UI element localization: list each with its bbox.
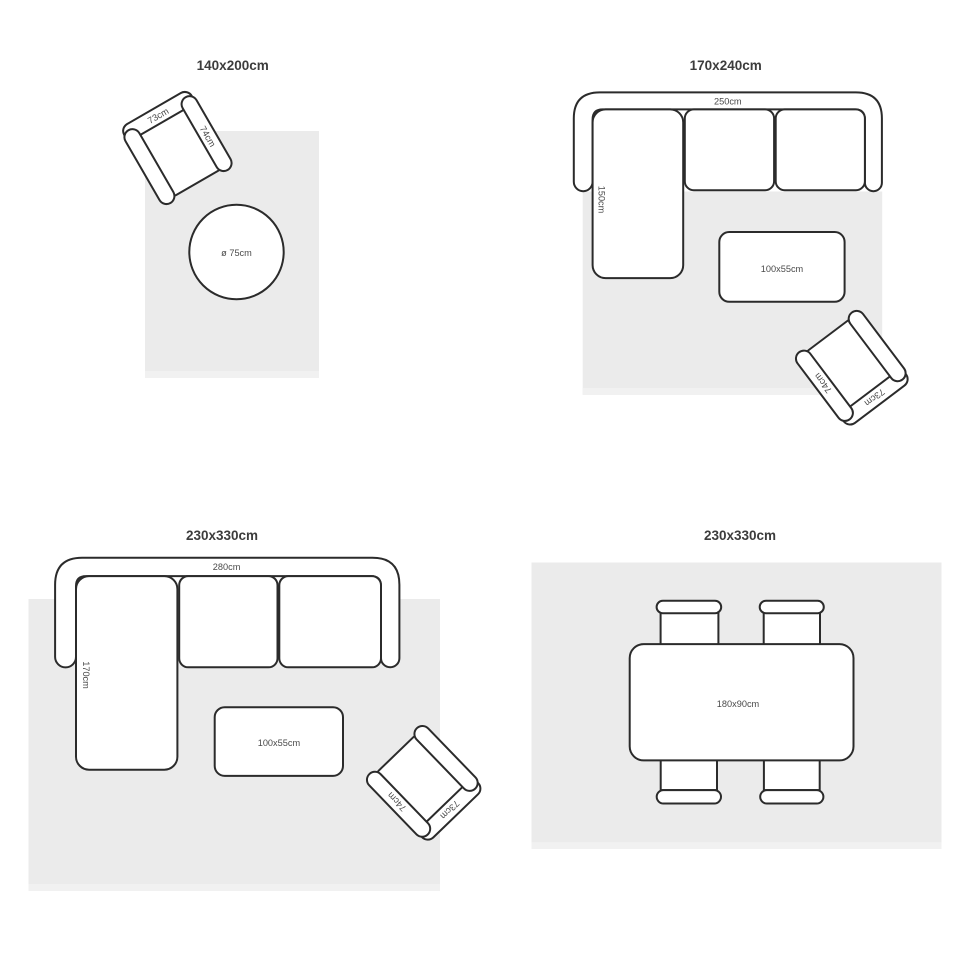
- svg-text:170cm: 170cm: [81, 661, 91, 689]
- svg-text:230x330cm: 230x330cm: [186, 528, 258, 543]
- svg-text:100x55cm: 100x55cm: [761, 264, 804, 274]
- svg-text:150cm: 150cm: [597, 186, 607, 214]
- svg-text:230x330cm: 230x330cm: [704, 528, 776, 543]
- svg-text:180x90cm: 180x90cm: [717, 699, 760, 709]
- svg-text:250cm: 250cm: [714, 96, 742, 106]
- svg-text:170x240cm: 170x240cm: [690, 58, 762, 73]
- svg-text:280cm: 280cm: [213, 562, 241, 572]
- svg-text:140x200cm: 140x200cm: [197, 58, 269, 73]
- svg-text:100x55cm: 100x55cm: [258, 738, 301, 748]
- svg-text:ø 75cm: ø 75cm: [221, 248, 252, 258]
